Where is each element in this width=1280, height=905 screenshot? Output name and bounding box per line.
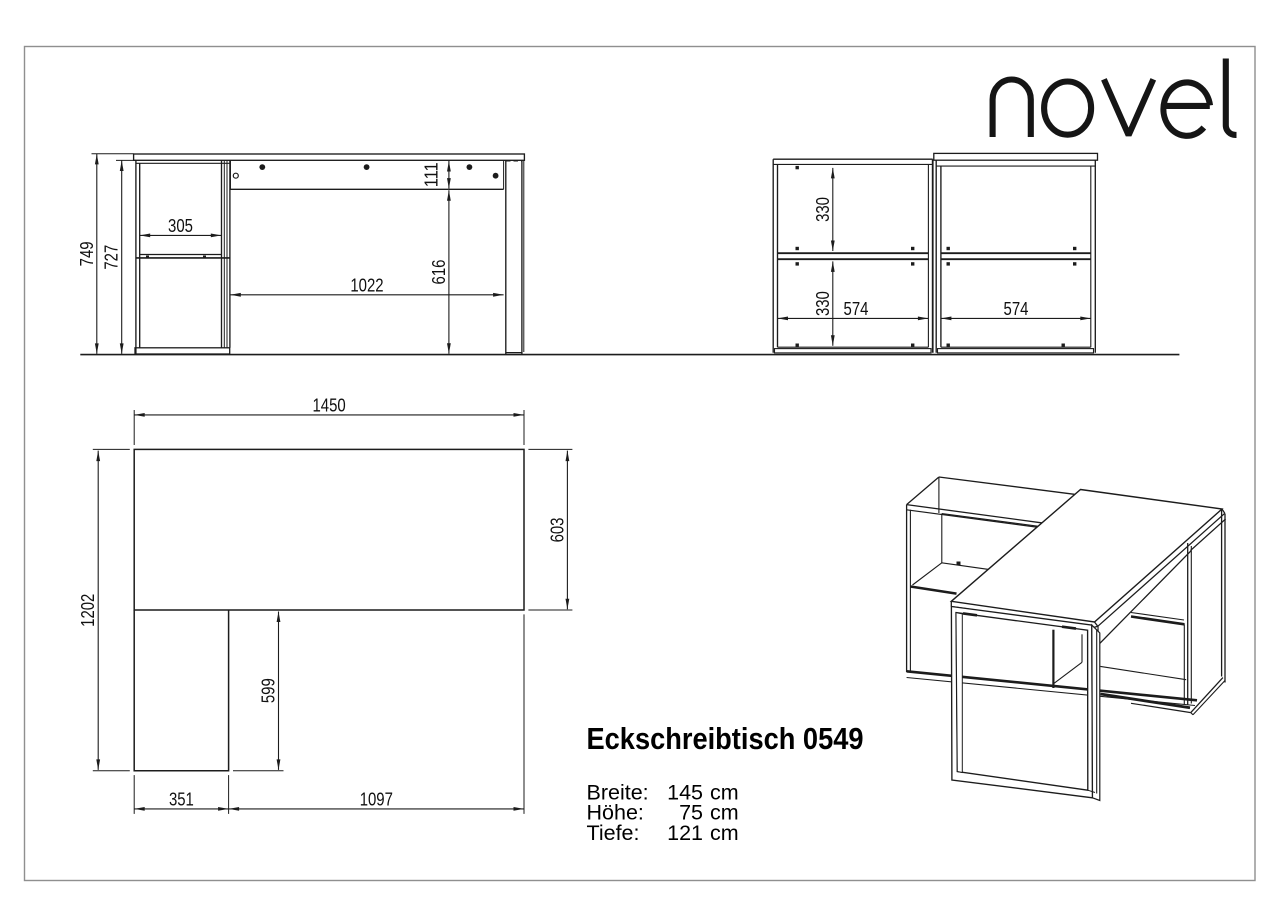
svg-text:330: 330: [813, 291, 833, 316]
svg-text:1022: 1022: [350, 276, 383, 296]
svg-text:1097: 1097: [360, 790, 393, 810]
svg-text:330: 330: [813, 197, 833, 222]
svg-text:121: 121: [667, 821, 703, 845]
svg-text:616: 616: [429, 260, 449, 285]
svg-text:Tiefe:: Tiefe:: [587, 821, 640, 845]
svg-text:603: 603: [547, 518, 567, 543]
svg-text:Eckschreibtisch 0549: Eckschreibtisch 0549: [587, 721, 864, 756]
svg-text:574: 574: [1004, 299, 1029, 319]
svg-text:305: 305: [168, 216, 193, 236]
svg-text:111: 111: [422, 162, 442, 187]
svg-text:574: 574: [844, 299, 869, 319]
svg-text:1202: 1202: [78, 594, 98, 627]
svg-text:cm: cm: [710, 821, 739, 845]
svg-text:749: 749: [77, 241, 97, 266]
svg-text:351: 351: [169, 790, 194, 810]
svg-text:599: 599: [259, 678, 279, 703]
svg-text:727: 727: [102, 245, 122, 270]
svg-text:1450: 1450: [313, 396, 346, 416]
